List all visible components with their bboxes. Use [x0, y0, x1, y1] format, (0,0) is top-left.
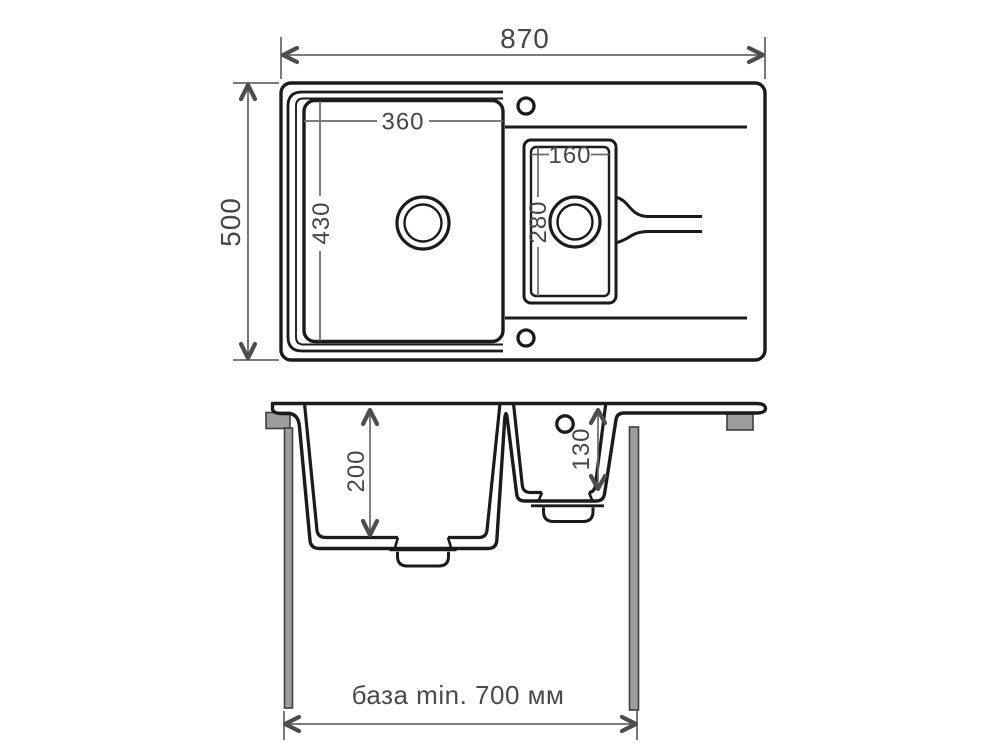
- dim-base-700: [284, 711, 637, 740]
- front-view: 200 130 база min. 700 мм: [266, 404, 766, 741]
- faucet-hole-top: [518, 98, 534, 114]
- dim-160-label: 160: [548, 142, 591, 169]
- dim-500-label: 500: [215, 197, 246, 247]
- top-view: 870 500 360 430 160: [215, 23, 765, 360]
- main-drain-fitting: [390, 538, 457, 567]
- cabinet-parts: [266, 413, 753, 711]
- dim-200-label: 200: [343, 449, 370, 492]
- overflow-channel-top-line: [615, 197, 702, 217]
- small-drain-inner-ring: [558, 205, 593, 240]
- dim-280-label: 280: [525, 200, 552, 243]
- dim-base-700-label: база min. 700 мм: [352, 680, 565, 710]
- sink-technical-drawing: 870 500 360 430 160: [0, 0, 1000, 750]
- dim-430-label: 430: [308, 201, 335, 244]
- dim-130-label: 130: [568, 427, 595, 470]
- small-drain-fitting: [531, 493, 604, 522]
- drawing-canvas: 870 500 360 430 160: [0, 0, 1000, 750]
- cabinet-wall-left: [285, 428, 293, 708]
- dim-360-label: 360: [381, 109, 424, 136]
- cabinet-wall-right: [630, 427, 639, 710]
- faucet-hole-bottom: [518, 330, 534, 346]
- dim-870-label: 870: [500, 23, 550, 54]
- main-bowl-inner-profile: [305, 404, 501, 538]
- main-drain-inner-ring: [405, 205, 442, 242]
- cabinet-bracket-right: [727, 414, 753, 430]
- overflow-channel-bottom-line: [615, 232, 702, 244]
